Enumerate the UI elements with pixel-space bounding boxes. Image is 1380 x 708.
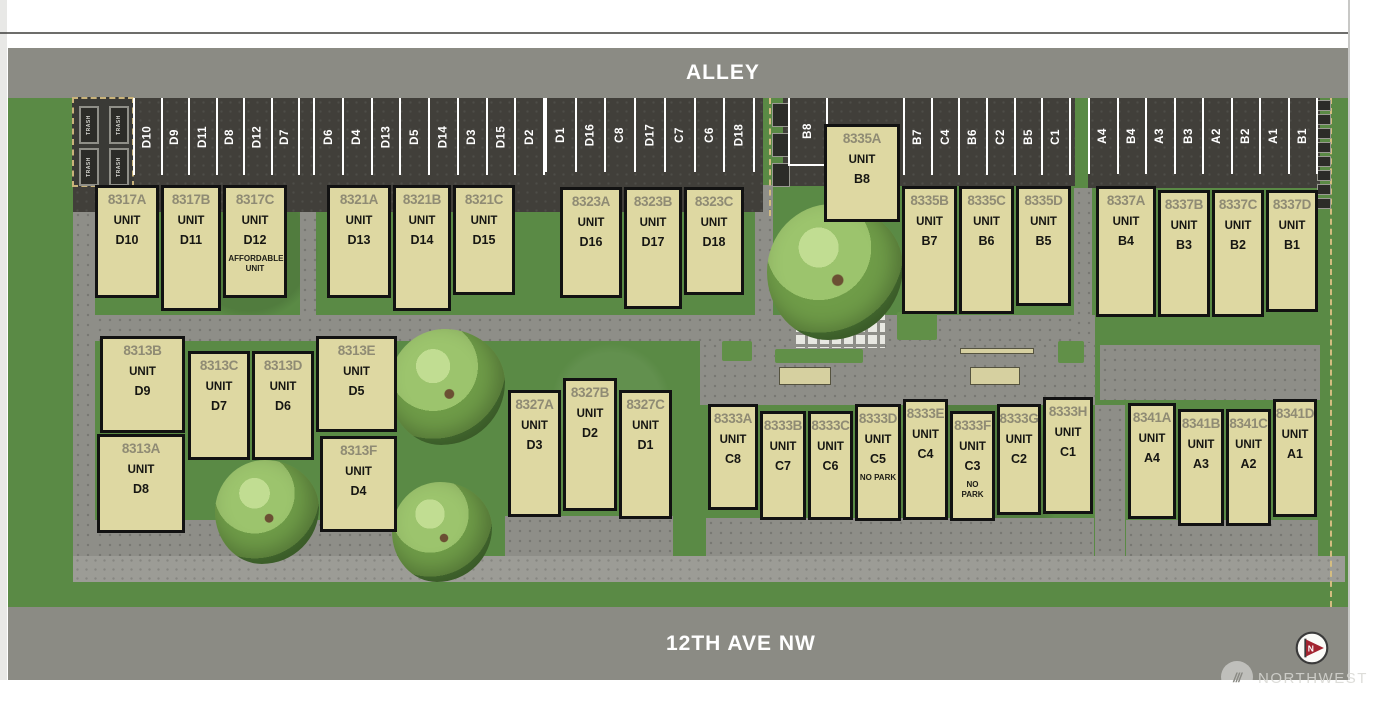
parking-stall-B4: B4 <box>1119 98 1148 174</box>
building-8341C: 8341CUNITA2 <box>1226 409 1271 526</box>
building-address: 8337D <box>1273 198 1311 212</box>
trash-bin: TRASH <box>109 106 129 144</box>
building-address: 8313C <box>200 359 238 373</box>
unit-label: UNIT <box>343 367 370 379</box>
unit-label: UNIT <box>206 382 233 394</box>
building-8337C: 8337CUNITB2 <box>1212 190 1264 317</box>
unit-code: A1 <box>1287 448 1303 461</box>
unit-code: B4 <box>1118 235 1134 248</box>
unit-code: B2 <box>1230 239 1246 252</box>
alley-label: ALLEY <box>686 61 760 85</box>
stoops-8333 <box>706 518 1094 558</box>
building-address: 8337C <box>1219 198 1257 212</box>
unit-label: UNIT <box>521 421 548 433</box>
parking-stall-C2: C2 <box>988 98 1016 175</box>
building-address: 8341A <box>1133 411 1171 425</box>
trash-bin-strip <box>1317 156 1331 167</box>
alley-road <box>8 48 1348 98</box>
building-8313B: 8313BUNITD9 <box>100 336 185 433</box>
grass-patch <box>775 349 863 363</box>
flag-logo: N <box>1295 631 1329 665</box>
stalls-8321: D6D4D13D5D14D3D15D2 <box>313 98 545 175</box>
building-address: 8333D <box>859 412 897 426</box>
parking-stall-label: D15 <box>495 125 507 148</box>
building-8327B: 8327BUNITD2 <box>563 378 617 511</box>
grass-patch <box>722 341 752 361</box>
parking-stall-label: A4 <box>1097 128 1109 144</box>
building-8313F: 8313FUNITD4 <box>320 436 397 532</box>
unit-code: B1 <box>1284 239 1300 252</box>
unit-label: UNIT <box>959 442 986 454</box>
photo-bottom-margin <box>0 680 1380 708</box>
unit-code: D1 <box>638 439 654 452</box>
building-address: 8341D <box>1276 407 1314 421</box>
unit-label: UNIT <box>129 367 156 379</box>
trash-bin-strip <box>1317 128 1331 139</box>
unit-code: C8 <box>725 453 741 466</box>
unit-label: UNIT <box>770 442 797 454</box>
building-address: 8313B <box>123 344 161 358</box>
trash-bin-small <box>772 163 790 187</box>
unit-label: UNIT <box>632 421 659 433</box>
parking-stall-label: A1 <box>1268 128 1280 144</box>
parking-stall-D12: D12 <box>245 98 273 175</box>
building-8333F: 8333FUNITC3NO PARK <box>950 411 995 521</box>
building-8313A: 8313AUNITD8 <box>97 434 185 533</box>
unit-code: D14 <box>411 234 434 247</box>
building-address: 8321C <box>465 193 503 207</box>
parking-stall-A4: A4 <box>1090 98 1119 174</box>
unit-code: D11 <box>180 234 202 247</box>
building-note: NO PARK <box>860 473 896 483</box>
building-address: 8335B <box>910 194 948 208</box>
building-address: 8333B <box>764 419 802 433</box>
unit-code: D17 <box>642 236 665 249</box>
parking-stall-label: B2 <box>1240 128 1252 144</box>
building-8333A: 8333AUNITC8 <box>708 404 758 510</box>
building-address: 8333E <box>907 407 945 421</box>
stalls-8337: A4B4A3B3A2B2A1B1 <box>1088 98 1318 174</box>
building-8313D: 8313DUNITD6 <box>252 351 314 460</box>
parking-stall-D14: D14 <box>430 98 459 175</box>
parking-stall-D3: D3 <box>459 98 488 175</box>
unit-label: UNIT <box>720 435 747 447</box>
unit-code: D5 <box>349 385 365 398</box>
building-address: 8337B <box>1165 198 1203 212</box>
parking-stall-C7: C7 <box>666 98 696 172</box>
unit-label: UNIT <box>128 465 155 477</box>
parking-stall-label: D7 <box>279 129 291 145</box>
photo-right-edge <box>1348 0 1380 708</box>
building-8317B: 8317BUNITD11 <box>161 185 221 311</box>
building-8321B: 8321BUNITD14 <box>393 185 451 311</box>
parking-stall-label: D5 <box>409 129 421 145</box>
building-address: 8323C <box>695 195 733 209</box>
parking-stall-label: D13 <box>380 125 392 148</box>
mid-corridor <box>95 315 1095 341</box>
unit-code: D15 <box>473 234 496 247</box>
parking-stall-label: B6 <box>967 129 979 145</box>
building-8337A: 8337AUNITB4 <box>1096 186 1156 317</box>
unit-label: UNIT <box>1006 435 1033 447</box>
building-note: NO PARK <box>955 480 991 500</box>
building-note: AFFORDABLE UNIT <box>228 254 281 274</box>
unit-code: D13 <box>348 234 371 247</box>
parking-stall-A2: A2 <box>1204 98 1233 174</box>
building-address: 8323A <box>572 195 610 209</box>
unit-code: B7 <box>922 235 938 248</box>
building-8335D: 8335DUNITB5 <box>1016 186 1071 306</box>
parking-stall-label: A3 <box>1154 128 1166 144</box>
parking-stall-D17: D17 <box>636 98 666 172</box>
building-address: 8321B <box>403 193 441 207</box>
grass-patch <box>1058 341 1084 363</box>
unit-code: D12 <box>244 234 267 247</box>
unit-code: C1 <box>1060 446 1076 459</box>
property-line-b8 <box>769 98 771 216</box>
parking-stall-C8: C8 <box>606 98 636 172</box>
unit-code: B3 <box>1176 239 1192 252</box>
parking-stall-label: D11 <box>197 126 209 148</box>
left-walkway <box>73 180 95 580</box>
parking-stall-label: D17 <box>644 124 656 147</box>
grass-patch <box>897 312 937 340</box>
parking-stall-D13: D13 <box>373 98 402 175</box>
building-8333B: 8333BUNITC7 <box>760 411 806 520</box>
parking-stall-label: B4 <box>1126 128 1138 144</box>
unit-label: UNIT <box>916 217 943 229</box>
parking-stall-label: D1 <box>555 127 567 143</box>
unit-code: C2 <box>1011 453 1027 466</box>
building-8333D: 8333DUNITC5NO PARK <box>855 404 901 521</box>
stalls-8317: D10D9D11D8D12D7 <box>133 98 300 175</box>
parking-stall-label: D9 <box>169 129 181 145</box>
parking-stall-D1: D1 <box>547 98 577 172</box>
unit-code: C6 <box>823 460 839 473</box>
unit-label: UNIT <box>1282 430 1309 442</box>
building-address: 8313A <box>122 442 160 456</box>
building-8335C: 8335CUNITB6 <box>959 186 1014 314</box>
watermark-logo-icon: /// <box>1221 661 1253 693</box>
parking-stall-label: B7 <box>912 129 924 145</box>
planter-bench <box>960 348 1034 354</box>
unit-label: UNIT <box>242 216 269 228</box>
unit-code: D16 <box>580 236 603 249</box>
site-plan-image: ALLEY TRASH TRASH TRASH TRASH <box>0 0 1380 708</box>
stall-b8: B8 <box>788 98 828 166</box>
unit-label: UNIT <box>346 216 373 228</box>
trash-bin: TRASH <box>79 148 99 186</box>
planter <box>970 367 1020 385</box>
unit-label: UNIT <box>577 409 604 421</box>
building-8313C: 8313CUNITD7 <box>188 351 250 460</box>
parking-stall-C6: C6 <box>696 98 726 172</box>
parking-stall-D9: D9 <box>163 98 191 175</box>
unit-label: UNIT <box>1235 440 1262 452</box>
parking-stall-label: C2 <box>995 129 1007 145</box>
unit-code: D8 <box>133 483 149 496</box>
building-8313E: 8313EUNITD5 <box>316 336 397 432</box>
building-8341A: 8341AUNITA4 <box>1128 403 1176 519</box>
unit-label: UNIT <box>865 435 892 447</box>
building-address: 8335C <box>967 194 1005 208</box>
parking-stall-D15: D15 <box>488 98 517 175</box>
stalls-8323: D1D16C8D17C7C6D18 <box>545 98 755 172</box>
parking-stall-label: D4 <box>351 129 363 145</box>
photo-top-line <box>0 32 1380 34</box>
unit-label: UNIT <box>701 218 728 230</box>
building-8317C: 8317CUNITD12AFFORDABLE UNIT <box>223 185 287 298</box>
unit-code: B5 <box>1036 235 1052 248</box>
parking-stall-label: C4 <box>940 129 952 145</box>
parking-stall-B3: B3 <box>1176 98 1205 174</box>
parking-stall-D7: D7 <box>273 98 301 175</box>
building-8333G: 8333GUNITC2 <box>997 404 1041 515</box>
trash-bin-strip <box>1317 114 1331 125</box>
parking-stall-label: D12 <box>252 125 264 148</box>
building-8323B: 8323BUNITD17 <box>624 187 682 309</box>
building-address: 8333G <box>999 412 1038 426</box>
parking-stall-B2: B2 <box>1233 98 1262 174</box>
building-8321C: 8321CUNITD15 <box>453 185 515 295</box>
building-address: 8317A <box>108 193 146 207</box>
building-8323C: 8323CUNITD18 <box>684 187 744 295</box>
parking-stall-label: D16 <box>585 124 597 147</box>
unit-code: B8 <box>854 173 870 186</box>
unit-label: UNIT <box>114 216 141 228</box>
parking-stall-label: D6 <box>322 129 334 145</box>
building-8317A: 8317AUNITD10 <box>95 185 159 298</box>
trash-bin: TRASH <box>79 106 99 144</box>
unit-label: UNIT <box>345 467 372 479</box>
building-address: 8341C <box>1229 417 1267 431</box>
unit-code: D10 <box>116 234 139 247</box>
parking-stall-label: B8 <box>802 123 814 139</box>
building-8337B: 8337BUNITB3 <box>1158 190 1210 317</box>
building-address: 8313D <box>264 359 302 373</box>
stoops-8327 <box>505 516 673 558</box>
parking-stall-label: D14 <box>437 125 449 148</box>
unit-code: D18 <box>703 236 726 249</box>
building-address: 8327C <box>626 398 664 412</box>
unit-code: D2 <box>582 427 598 440</box>
unit-label: UNIT <box>409 216 436 228</box>
central-plaza <box>700 341 1095 405</box>
building-address: 8337A <box>1107 194 1145 208</box>
building-8327C: 8327CUNITD1 <box>619 390 672 519</box>
stalls-8335: B7C4B6C2B5C1 <box>903 98 1071 175</box>
unit-label: UNIT <box>1225 221 1252 233</box>
parking-stall-D5: D5 <box>401 98 430 175</box>
parking-stall-D4: D4 <box>344 98 373 175</box>
building-8335B: 8335BUNITB7 <box>902 186 957 314</box>
building-address: 8335D <box>1024 194 1062 208</box>
unit-label: UNIT <box>1279 221 1306 233</box>
unit-label: UNIT <box>973 217 1000 229</box>
unit-code: D7 <box>211 400 227 413</box>
building-8341D: 8341DUNITA1 <box>1273 399 1317 517</box>
parking-stall-label: C6 <box>703 127 715 143</box>
parking-stall-B8: B8 <box>790 98 826 164</box>
unit-label: UNIT <box>1030 217 1057 229</box>
unit-label: UNIT <box>178 216 205 228</box>
parking-stall-D11: D11 <box>190 98 218 175</box>
unit-label: UNIT <box>849 155 876 167</box>
parking-stall-label: C8 <box>614 127 626 143</box>
parking-stall-label: C7 <box>674 127 686 143</box>
parking-stall-label: D2 <box>524 129 536 145</box>
unit-label: UNIT <box>1139 434 1166 446</box>
unit-label: UNIT <box>1188 440 1215 452</box>
building-address: 8333F <box>954 419 991 433</box>
parking-stall-D2: D2 <box>516 98 545 175</box>
building-address: 8327A <box>515 398 553 412</box>
unit-label: UNIT <box>1055 428 1082 440</box>
unit-label: UNIT <box>1113 217 1140 229</box>
building-8321A: 8321AUNITD13 <box>327 185 391 298</box>
building-8333E: 8333EUNITC4 <box>903 399 948 520</box>
unit-code: C5 <box>870 453 886 466</box>
building-address: 8333A <box>714 412 752 426</box>
unit-code: A4 <box>1144 452 1160 465</box>
path-8333-8341 <box>1095 405 1125 560</box>
unit-label: UNIT <box>1171 221 1198 233</box>
unit-code: A3 <box>1193 458 1209 471</box>
flag-letter: N <box>1308 643 1314 653</box>
parking-stall-C4: C4 <box>933 98 961 175</box>
parking-stall-label: C1 <box>1050 129 1062 145</box>
parking-stall-D10: D10 <box>135 98 163 175</box>
unit-label: UNIT <box>817 442 844 454</box>
unit-code: D6 <box>275 400 291 413</box>
front-road-label: 12TH AVE NW <box>666 632 816 656</box>
unit-code: B6 <box>979 235 995 248</box>
building-8333C: 8333CUNITC6 <box>808 411 853 520</box>
building-address: 8317C <box>236 193 274 207</box>
parking-stall-B1: B1 <box>1290 98 1319 174</box>
building-8333H: 8333HUNITC1 <box>1043 397 1093 514</box>
parking-stall-B5: B5 <box>1016 98 1044 175</box>
trash-bin-strip <box>1317 198 1331 209</box>
parking-stall-A3: A3 <box>1147 98 1176 174</box>
unit-label: UNIT <box>471 216 498 228</box>
parking-stall-B7: B7 <box>905 98 933 175</box>
parking-stall-D16: D16 <box>577 98 607 172</box>
unit-code: D9 <box>135 385 151 398</box>
right-plaza <box>1100 345 1320 400</box>
parking-stall-A1: A1 <box>1261 98 1290 174</box>
unit-code: C4 <box>918 448 934 461</box>
photo-left-edge <box>0 0 7 708</box>
parking-stall-D8: D8 <box>218 98 246 175</box>
trash-bin-strip <box>1317 170 1331 181</box>
building-address: 8341B <box>1182 417 1220 431</box>
unit-code: A2 <box>1241 458 1257 471</box>
building-address: 8321A <box>340 193 378 207</box>
unit-label: UNIT <box>270 382 297 394</box>
unit-label: UNIT <box>912 430 939 442</box>
building-address: 8313E <box>338 344 376 358</box>
parking-stall-B6: B6 <box>960 98 988 175</box>
watermark-brand: NORTHWEST <box>1258 670 1368 687</box>
building-address: 8333C <box>811 419 849 433</box>
parking-stall-label: B1 <box>1297 128 1309 144</box>
parking-stall-label: B5 <box>1023 129 1035 145</box>
parking-stall-label: D3 <box>466 129 478 145</box>
trash-enclosure-west: TRASH TRASH TRASH TRASH <box>72 97 134 187</box>
parking-stall-label: A2 <box>1211 128 1223 144</box>
parking-stall-C1: C1 <box>1043 98 1071 175</box>
building-8341B: 8341BUNITA3 <box>1178 409 1224 526</box>
building-address: 8323B <box>634 195 672 209</box>
unit-code: D4 <box>351 485 367 498</box>
unit-code: D3 <box>527 439 543 452</box>
building-8323A: 8323AUNITD16 <box>560 187 622 298</box>
unit-code: C3 <box>965 460 981 473</box>
path-8335-8337 <box>1074 188 1092 343</box>
building-8327A: 8327AUNITD3 <box>508 390 561 517</box>
parking-stall-label: D18 <box>733 124 745 147</box>
building-address: 8313F <box>340 444 377 458</box>
trash-bin-strip <box>1317 100 1331 111</box>
unit-label: UNIT <box>578 218 605 230</box>
parking-stall-label: D10 <box>142 125 154 148</box>
parking-stall-label: B3 <box>1183 128 1195 144</box>
trash-bin-strip <box>1317 184 1331 195</box>
parking-stall-D6: D6 <box>315 98 344 175</box>
building-8337D: 8337DUNITB1 <box>1266 190 1318 312</box>
building-address: 8333H <box>1049 405 1087 419</box>
building-address: 8327B <box>571 386 609 400</box>
building-address: 8317B <box>172 193 210 207</box>
parking-stall-D18: D18 <box>725 98 755 172</box>
trash-bin-strip <box>1317 142 1331 153</box>
building-address: 8335A <box>843 132 881 146</box>
parking-stall-label: D8 <box>224 129 236 145</box>
trash-bin: TRASH <box>109 148 129 186</box>
unit-label: UNIT <box>640 218 667 230</box>
planter <box>779 367 831 385</box>
unit-code: C7 <box>775 460 791 473</box>
building-8335A: 8335AUNITB8 <box>824 124 900 222</box>
